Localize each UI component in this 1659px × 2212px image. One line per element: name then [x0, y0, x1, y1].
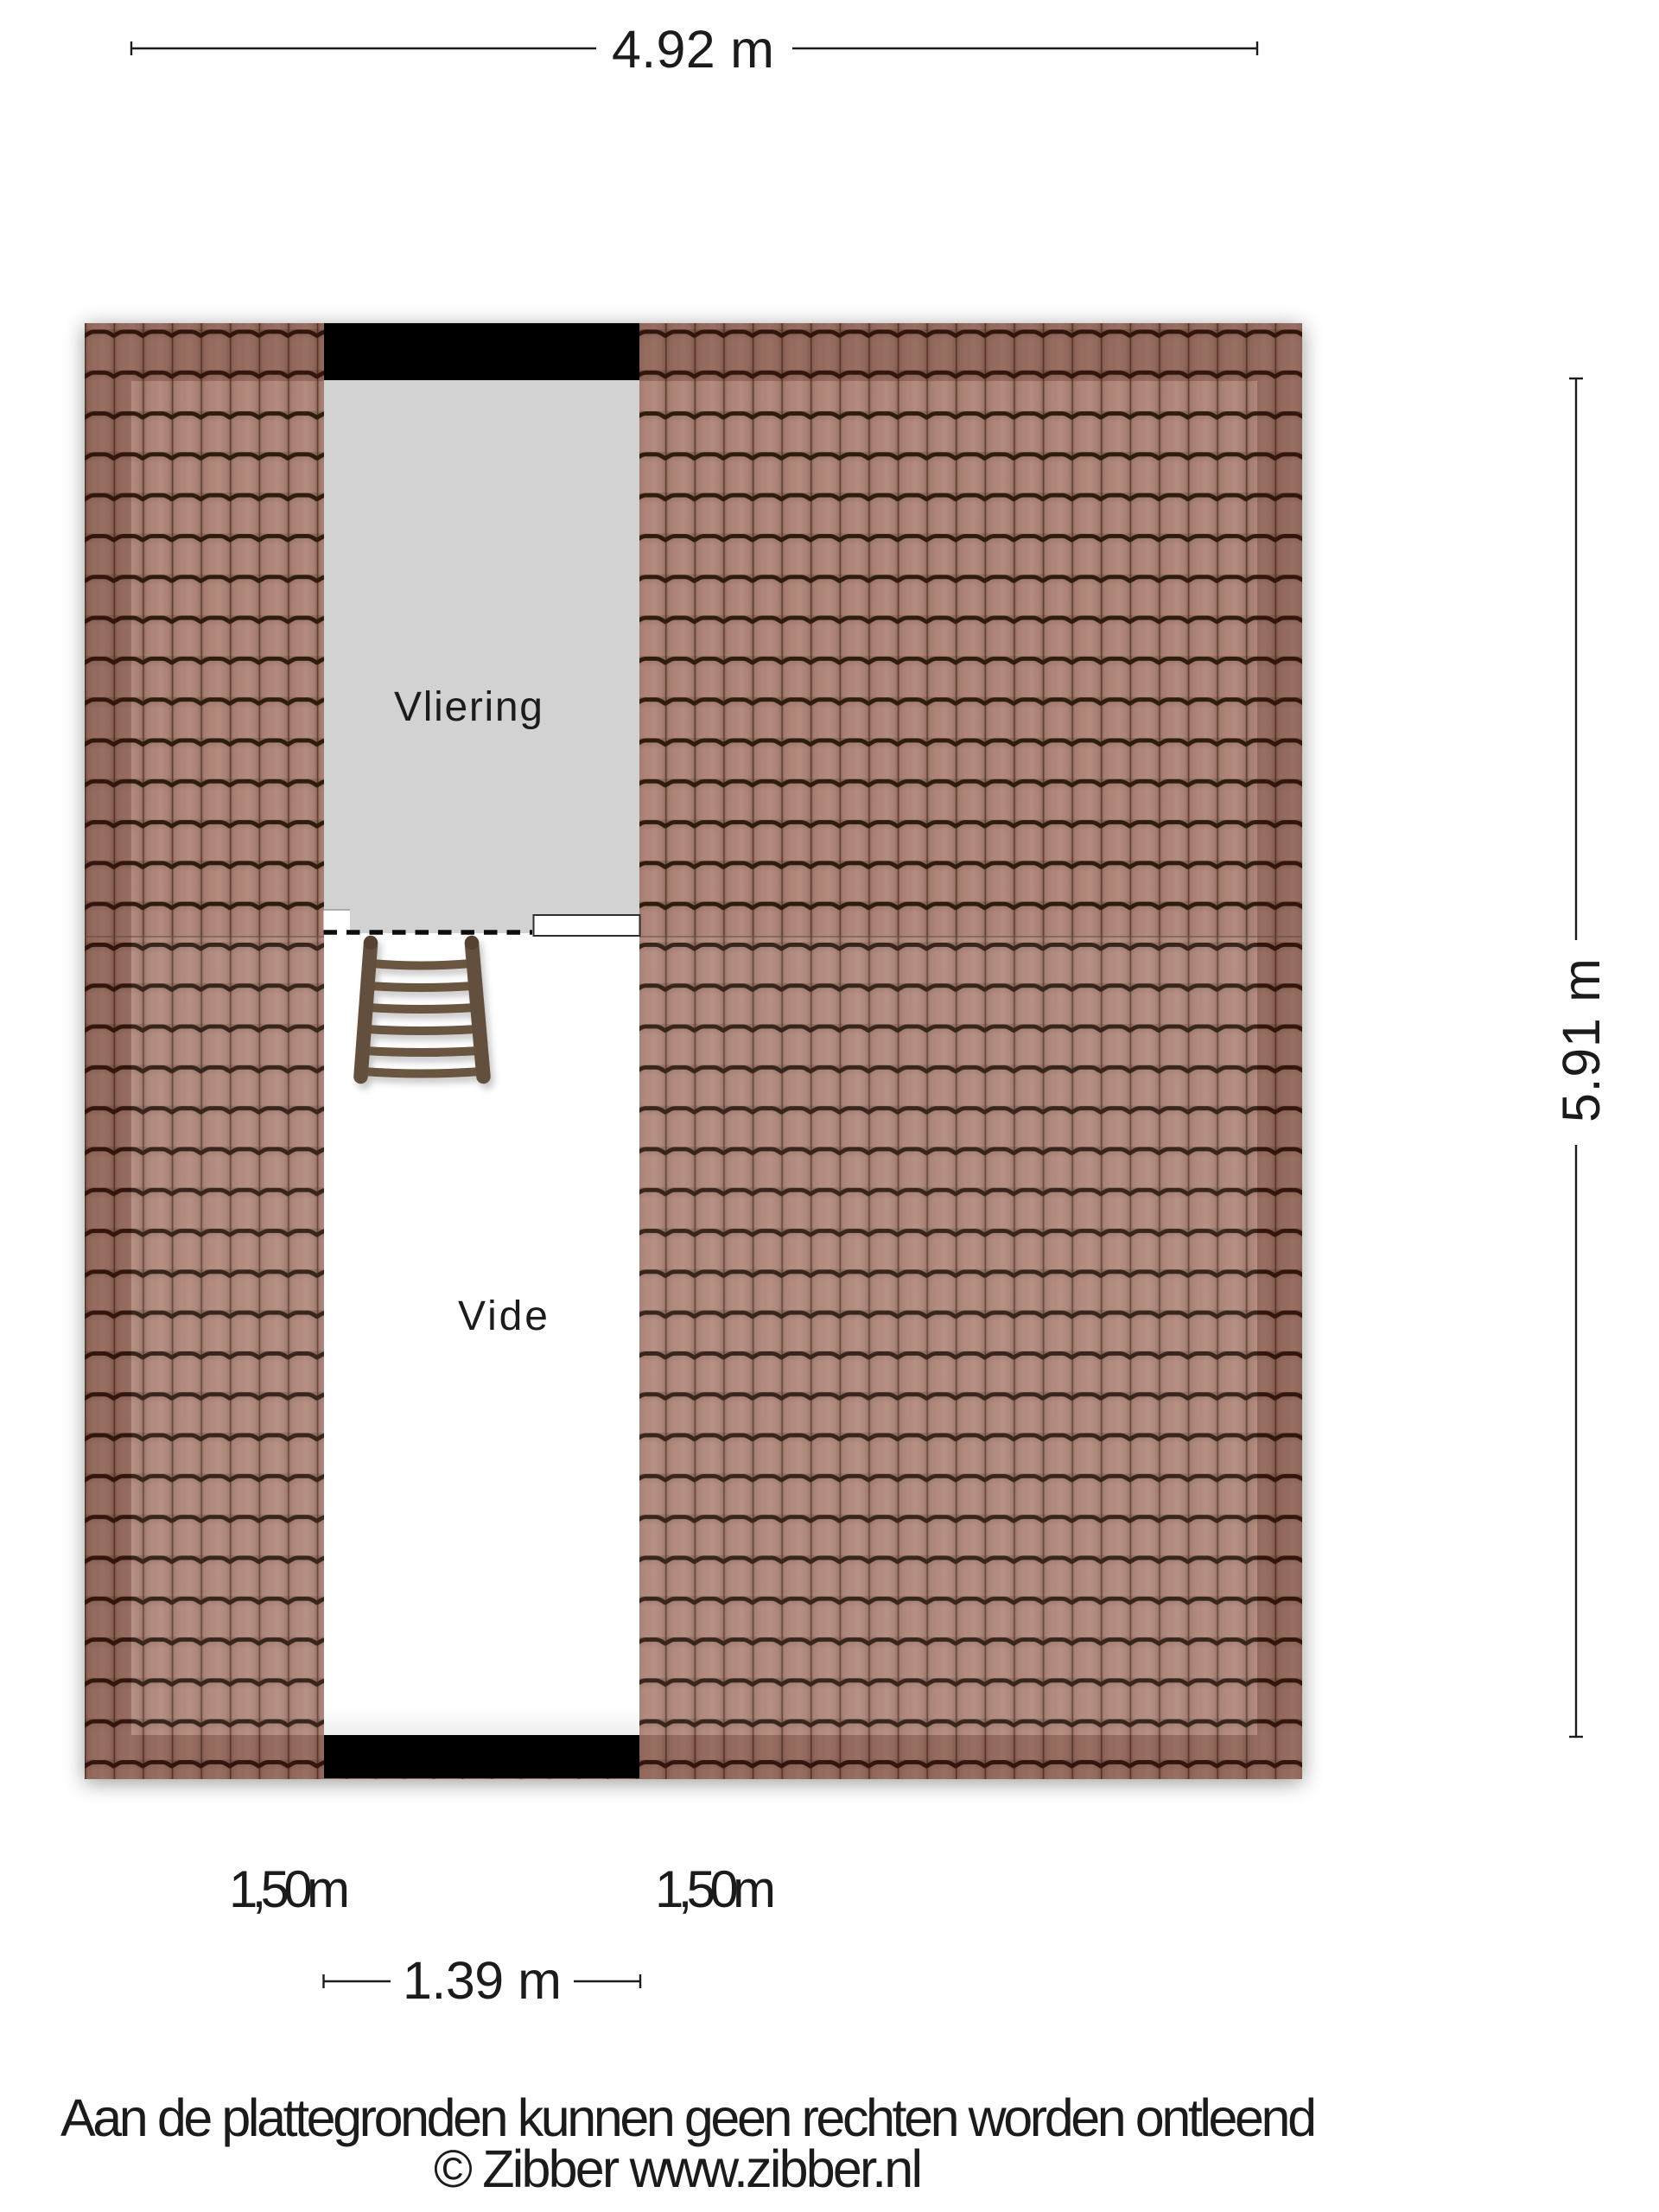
svg-text:4.92 m: 4.92 m — [612, 20, 774, 79]
svg-text:1.39 m: 1.39 m — [403, 1951, 562, 2010]
svg-text:Vliering: Vliering — [394, 684, 543, 730]
svg-text:5.91 m: 5.91 m — [1552, 958, 1611, 1122]
svg-text:Vide: Vide — [458, 1294, 548, 1339]
svg-text:1,50m: 1,50m — [229, 1860, 350, 1918]
svg-text:Aan de plattegronden kunnen ge: Aan de plattegronden kunnen geen rechten… — [60, 2088, 1317, 2147]
svg-text:© Zibber www.zibber.nl: © Zibber www.zibber.nl — [434, 2139, 923, 2198]
svg-text:1,50m: 1,50m — [655, 1860, 776, 1918]
